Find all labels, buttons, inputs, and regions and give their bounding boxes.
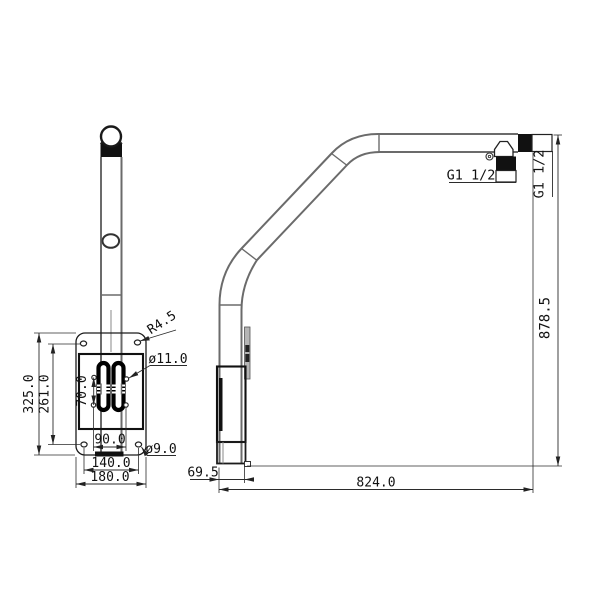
dim-outlet-thread: G1 1/2	[447, 168, 496, 184]
dim-overall-height: 878.5	[538, 297, 554, 339]
tube-joint-line	[332, 154, 347, 166]
dim-plate-width: 180.0	[90, 470, 129, 485]
technical-drawing-page: 325.0 261.0 70.0 90.0 140.0 180.0	[0, 0, 600, 600]
outlet-thread-section	[496, 157, 516, 171]
outlet-nipple	[496, 171, 516, 183]
wall-plate-side	[217, 327, 251, 467]
dim-hole-spacing-v: 261.0	[38, 374, 53, 413]
corner-hole	[135, 442, 141, 447]
pole-collar	[103, 234, 120, 248]
pole-ball-top	[101, 127, 121, 147]
dim-slot-pitch-h: 90.0	[94, 433, 125, 448]
corner-hole	[134, 340, 140, 345]
slot-center-hole	[124, 403, 128, 407]
outlet-boss	[495, 142, 514, 157]
outlet-pivot	[486, 153, 493, 160]
dim-hole-spacing-h: 140.0	[91, 456, 130, 471]
drawing-canvas: 325.0 261.0 70.0 90.0 140.0 180.0	[0, 0, 600, 600]
dim-horizontal-reach: 824.0	[356, 476, 395, 491]
dim-slot-hole-dia: ø11.0	[148, 352, 187, 367]
corner-hole	[81, 442, 87, 447]
arm-end-cap	[518, 134, 532, 152]
tube-joint-line	[242, 249, 257, 261]
dim-corner-radius: R4.5	[145, 308, 179, 338]
slot-center-hole	[124, 377, 128, 381]
dim-corner-hole-dia: ø9.0	[145, 442, 176, 457]
dim-wall-offset: 69.5	[187, 466, 218, 481]
inlet-connector	[532, 135, 552, 152]
side-view: G1 1/2 G1 1/2 878.5 824.0 69.5	[187, 134, 562, 493]
dim-slot-pitch-v: 70.0	[75, 375, 90, 406]
tube-inner-edge	[242, 152, 519, 463]
dim-inlet-thread: G1 1/2	[532, 150, 548, 199]
dim-plate-height: 325.0	[22, 374, 37, 413]
side-view-dimensions: G1 1/2 G1 1/2 878.5 824.0 69.5	[187, 135, 562, 493]
corner-hole	[80, 341, 86, 346]
front-view: 325.0 261.0 70.0 90.0 140.0 180.0	[22, 127, 188, 489]
